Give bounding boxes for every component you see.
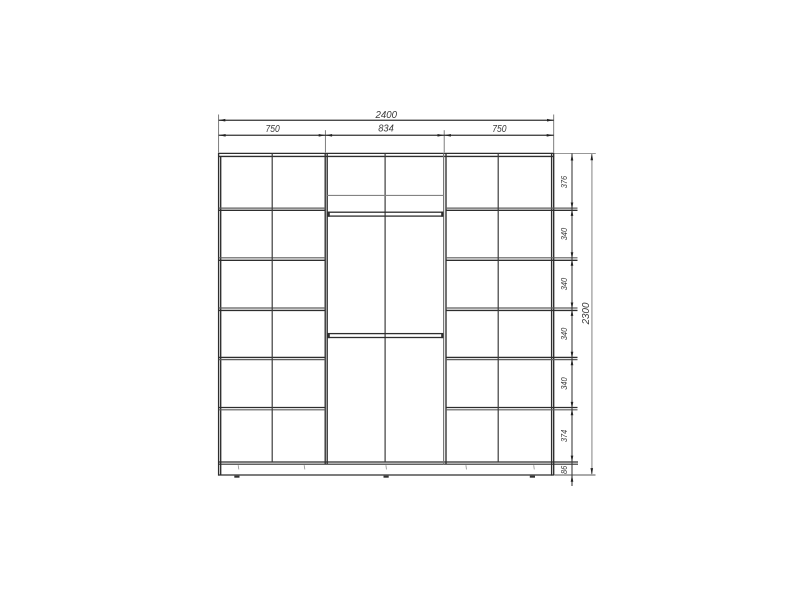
svg-text:374: 374 <box>559 429 569 442</box>
svg-text:2400: 2400 <box>375 110 398 121</box>
svg-text:86: 86 <box>559 466 569 474</box>
svg-text:2300: 2300 <box>580 302 592 325</box>
svg-text:340: 340 <box>559 377 569 390</box>
svg-text:750: 750 <box>492 124 507 135</box>
svg-text:340: 340 <box>559 327 569 340</box>
svg-text:750: 750 <box>266 124 281 135</box>
svg-text:834: 834 <box>378 124 394 135</box>
svg-text:376: 376 <box>559 176 569 189</box>
svg-text:340: 340 <box>559 278 569 291</box>
svg-text:340: 340 <box>559 228 569 241</box>
